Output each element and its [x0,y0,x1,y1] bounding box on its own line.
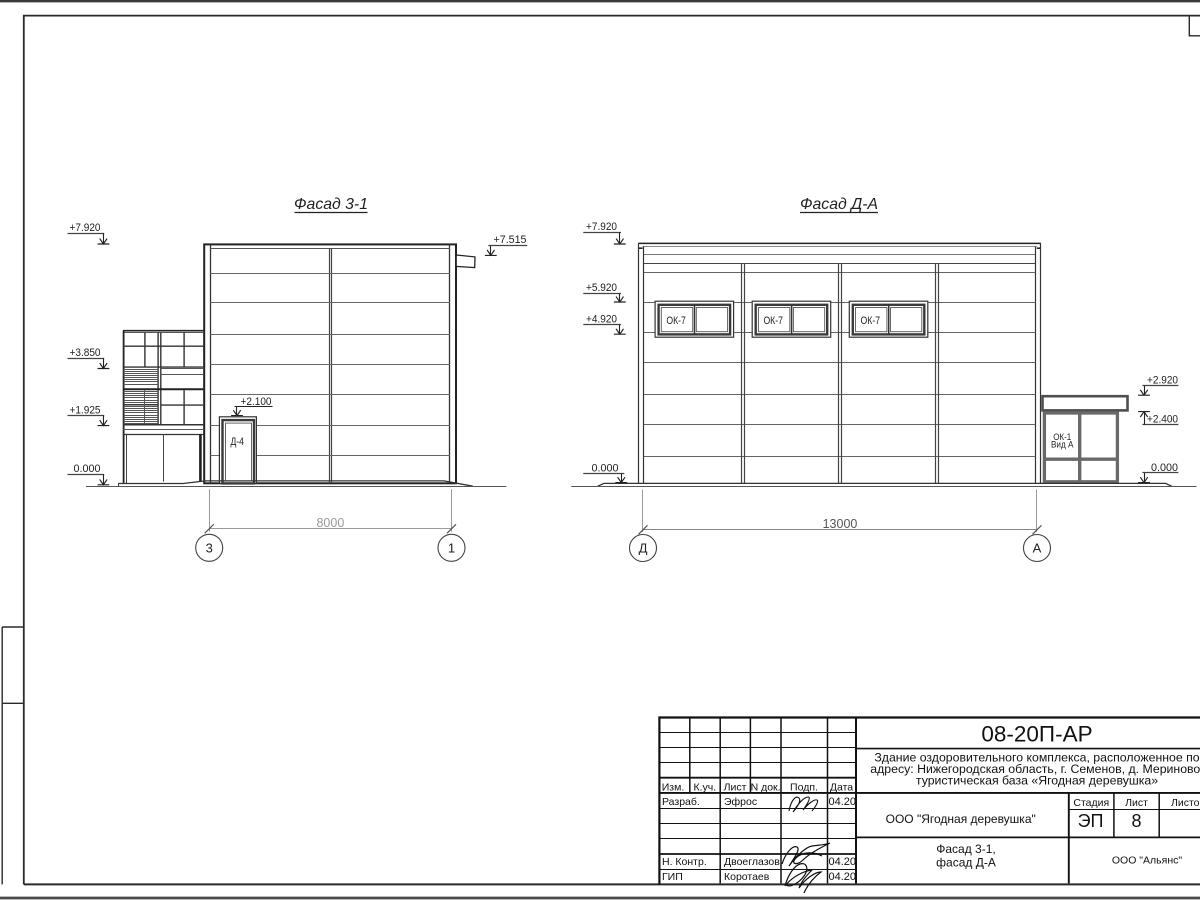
svg-text:Д-4: Д-4 [231,436,244,448]
svg-text:туристическая база «Ягодная де: туристическая база «Ягодная деревушка» [916,774,1158,788]
svg-text:Фасад 3-1,: Фасад 3-1, [936,842,995,856]
svg-text:8: 8 [1131,811,1141,831]
svg-text:Д: Д [639,541,648,556]
svg-text:+1.925: +1.925 [70,404,101,416]
svg-text:ГИП: ГИП [662,871,683,883]
svg-text:Лист: Лист [724,781,747,793]
svg-text:+7.920: +7.920 [70,222,101,234]
svg-text:0.000: 0.000 [592,462,619,474]
svg-text:фасад Д-А: фасад Д-А [936,856,996,870]
svg-text:04.20: 04.20 [829,796,857,808]
svg-text:Дата: Дата [830,781,853,793]
svg-text:А: А [1033,541,1042,556]
svg-text:08-20П-АР: 08-20П-АР [981,722,1092,747]
svg-text:Разраб.: Разраб. [662,796,700,808]
svg-text:+7.920: +7.920 [586,221,617,233]
svg-text:+3.850: +3.850 [70,347,101,359]
svg-text:+4.920: +4.920 [586,314,617,326]
svg-text:Вид А: Вид А [1051,440,1074,451]
svg-text:ОК-7: ОК-7 [763,315,783,327]
svg-text:ОК-7: ОК-7 [861,315,881,327]
svg-text:+5.920: +5.920 [586,282,617,294]
svg-text:Эфрос: Эфрос [724,796,757,808]
svg-text:Двоеглазов: Двоеглазов [724,856,780,868]
svg-text:N док.: N док. [751,781,781,793]
svg-text:Изм.: Изм. [662,781,685,793]
svg-text:Фасад 3-1: Фасад 3-1 [294,196,368,213]
svg-text:1: 1 [448,540,455,555]
svg-text:04.20: 04.20 [829,871,857,883]
svg-text:13000: 13000 [823,517,858,531]
svg-text:3: 3 [206,540,213,555]
svg-text:+2.400: +2.400 [1147,414,1178,426]
svg-text:ОК-7: ОК-7 [666,315,686,327]
svg-text:Стадия: Стадия [1073,797,1109,809]
svg-text:Фасад Д-А: Фасад Д-А [800,196,878,213]
svg-text:Коротаев: Коротаев [724,871,770,883]
svg-text:04.20: 04.20 [829,856,857,868]
svg-text:ООО "Ягодная деревушка": ООО "Ягодная деревушка" [886,812,1036,826]
svg-text:Н. Контр.: Н. Контр. [662,856,707,868]
svg-text:+2.920: +2.920 [1147,375,1178,387]
svg-text:Лист: Лист [1125,797,1148,809]
svg-text:Подп.: Подп. [790,781,818,793]
svg-text:8000: 8000 [316,516,344,530]
svg-text:Листов: Листов [1171,797,1200,809]
svg-text:К.уч.: К.уч. [693,781,716,793]
svg-text:0.000: 0.000 [74,463,101,475]
svg-text:ООО "Альянс": ООО "Альянс" [1112,855,1182,867]
svg-text:ЭП: ЭП [1078,811,1104,831]
svg-text:+7.515: +7.515 [494,234,527,246]
